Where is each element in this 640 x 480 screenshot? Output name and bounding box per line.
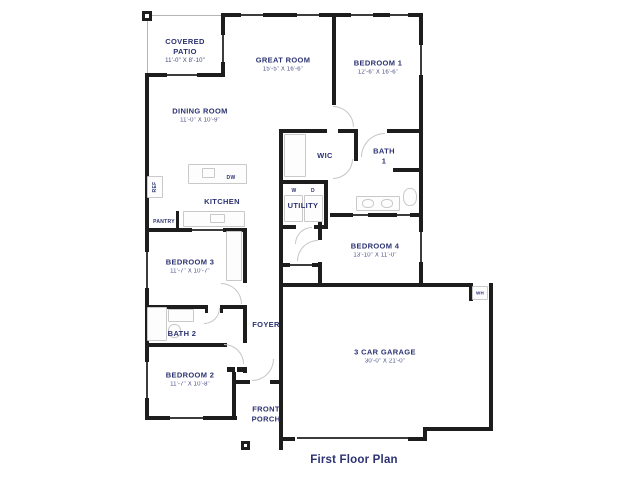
room-label-bath-2: BATH 2 bbox=[168, 329, 197, 339]
kitchen-island bbox=[188, 164, 247, 184]
room-label-dining-room: DINING ROOM11'-0" X 10'-9" bbox=[172, 107, 228, 124]
plan-title: First Floor Plan bbox=[310, 454, 398, 466]
wall-segment bbox=[312, 263, 322, 267]
wall-segment bbox=[393, 168, 423, 172]
wall-segment bbox=[419, 75, 423, 217]
window-line bbox=[241, 14, 263, 16]
room-label-bedroom-1: BEDROOM 112'-6" X 16'-6" bbox=[354, 59, 403, 76]
room-label-utility: UTILITY bbox=[288, 201, 319, 211]
wall-segment bbox=[145, 73, 167, 77]
window-line bbox=[146, 362, 148, 398]
bath1-sink bbox=[362, 199, 374, 208]
wall-segment bbox=[332, 13, 336, 105]
door-arc bbox=[333, 106, 354, 127]
door-arc bbox=[221, 283, 242, 304]
wall-segment bbox=[232, 380, 250, 384]
water-heater-label: WH bbox=[476, 291, 484, 296]
closet-line bbox=[353, 214, 368, 216]
wall-segment bbox=[373, 13, 390, 17]
wall-segment bbox=[279, 263, 290, 267]
porch-post bbox=[241, 441, 250, 450]
kitchen-sink bbox=[202, 168, 215, 178]
wall-segment bbox=[282, 129, 327, 133]
window-line bbox=[170, 417, 203, 419]
wall-segment bbox=[282, 180, 328, 184]
door-arc bbox=[252, 359, 274, 381]
wall-segment bbox=[145, 416, 170, 420]
pantry-label: PANTRY bbox=[153, 219, 175, 225]
room-label-bath-1: BATH 1 bbox=[373, 146, 395, 166]
wall-segment bbox=[354, 133, 358, 161]
closet-line bbox=[290, 264, 312, 266]
room-label-front-porch: FRONT PORCH bbox=[252, 404, 281, 424]
window-line bbox=[297, 14, 319, 16]
door-jamb bbox=[237, 367, 245, 372]
pantry-door-leaf bbox=[176, 211, 179, 228]
window-line bbox=[351, 14, 373, 16]
bath2-tub bbox=[147, 307, 167, 341]
room-label-garage: 3 CAR GARAGE30'-0" X 21'-0" bbox=[354, 348, 416, 365]
room-label-bedroom-3: BEDROOM 311'-7" X 10'-7" bbox=[166, 258, 215, 275]
bath2-vanity bbox=[168, 309, 194, 322]
room-label-covered-patio: COVERED PATIO11'-0" X 8'-10" bbox=[165, 37, 205, 64]
bath1-toilet bbox=[403, 188, 417, 206]
wall-segment bbox=[410, 213, 423, 217]
dishwasher-label: DW bbox=[227, 175, 236, 181]
floor-plan: COVERED PATIO11'-0" X 8'-10" GREAT ROOM1… bbox=[0, 0, 640, 480]
wall-segment bbox=[279, 129, 283, 430]
wall-segment bbox=[368, 213, 397, 217]
room-label-foyer: FOYER bbox=[252, 320, 280, 330]
wall-segment bbox=[221, 13, 225, 35]
wall-segment bbox=[330, 213, 353, 217]
dryer-label: D bbox=[311, 188, 315, 194]
wall-segment bbox=[419, 13, 423, 45]
wall-segment bbox=[423, 427, 493, 431]
wall-segment bbox=[419, 217, 423, 232]
patio-edge bbox=[147, 15, 221, 16]
room-label-bedroom-2: BEDROOM 211'-7" X 10'-8" bbox=[166, 371, 215, 388]
room-label-great-room: GREAT ROOM15'-5" X 16'-6" bbox=[256, 56, 311, 73]
window-line bbox=[390, 14, 408, 16]
wall-segment bbox=[270, 380, 281, 384]
wall-segment bbox=[263, 13, 297, 17]
closet-line bbox=[192, 229, 223, 231]
room-label-wic: WIC bbox=[317, 151, 333, 161]
wall-segment bbox=[243, 305, 247, 343]
door-arc bbox=[224, 344, 244, 364]
wall-segment bbox=[145, 228, 192, 232]
wall-segment bbox=[145, 343, 227, 347]
kitchen-sink bbox=[210, 214, 225, 223]
patio-post bbox=[142, 11, 152, 21]
refrigerator-label: REF bbox=[152, 182, 158, 193]
patio-door-line bbox=[167, 74, 197, 76]
wall-segment bbox=[243, 228, 247, 283]
patio-edge bbox=[147, 15, 148, 73]
wall-segment bbox=[489, 283, 493, 431]
room-label-bedroom-4: BEDROOM 413'-10" X 11'-0" bbox=[351, 242, 400, 259]
garage-door-line bbox=[297, 437, 408, 439]
wic-shelving bbox=[284, 134, 306, 177]
door-arc bbox=[204, 308, 220, 324]
window-line bbox=[146, 252, 148, 288]
wall-segment bbox=[282, 283, 472, 287]
wall-segment bbox=[197, 73, 225, 77]
window-line bbox=[222, 35, 224, 62]
wall-segment bbox=[223, 305, 245, 309]
room-label-kitchen: KITCHEN bbox=[204, 197, 240, 207]
closet-line bbox=[397, 214, 410, 216]
door-arc bbox=[333, 159, 353, 179]
bath1-sink bbox=[381, 199, 393, 208]
wall-segment bbox=[387, 129, 423, 133]
washer-label: W bbox=[291, 188, 296, 194]
wall-segment bbox=[324, 180, 328, 229]
wall-segment bbox=[282, 225, 296, 229]
wall-segment bbox=[283, 437, 295, 441]
window-line bbox=[420, 45, 422, 75]
window-line bbox=[420, 232, 422, 262]
wall-segment bbox=[145, 73, 149, 165]
wall-segment bbox=[408, 437, 425, 441]
bedroom3-closet bbox=[226, 231, 242, 281]
